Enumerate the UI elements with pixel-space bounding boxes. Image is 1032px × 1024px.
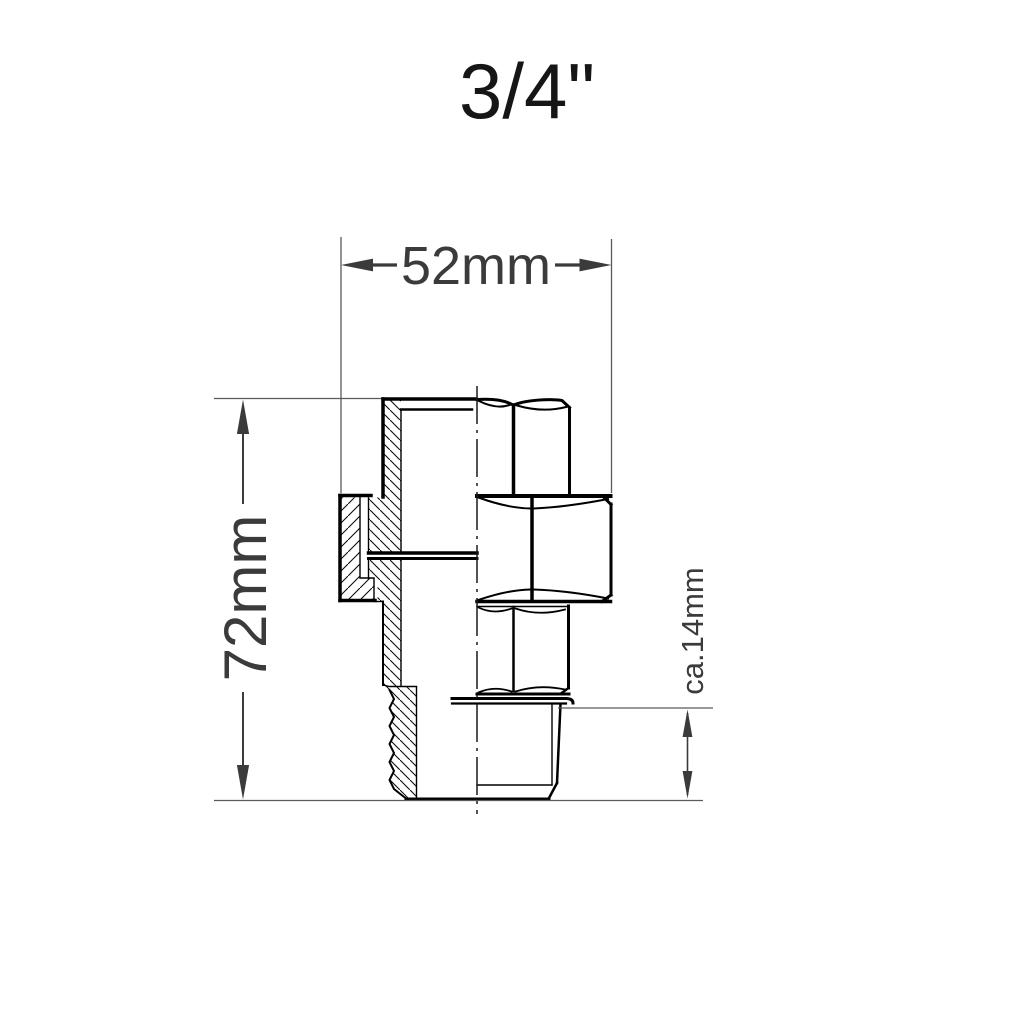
dimension-thread-length-label: ca.14mm [675, 567, 710, 694]
lower-piece-section [369, 558, 417, 799]
dimension-height: 72mm [212, 399, 703, 801]
arrow-right-icon [580, 259, 612, 272]
dimension-height-label: 72mm [212, 515, 279, 682]
arrow-down-icon [683, 771, 693, 799]
arrow-up-icon [683, 710, 693, 738]
size-title: 3/4" [459, 47, 595, 135]
pipe-union-technical-drawing: 3/4" [0, 0, 1032, 1024]
technical-drawing-page: 3/4" [0, 0, 1032, 1024]
arrow-left-icon [341, 259, 373, 272]
arrow-up-icon [237, 400, 249, 435]
dimension-width-label: 52mm [401, 236, 551, 296]
arrow-down-icon [237, 765, 249, 800]
